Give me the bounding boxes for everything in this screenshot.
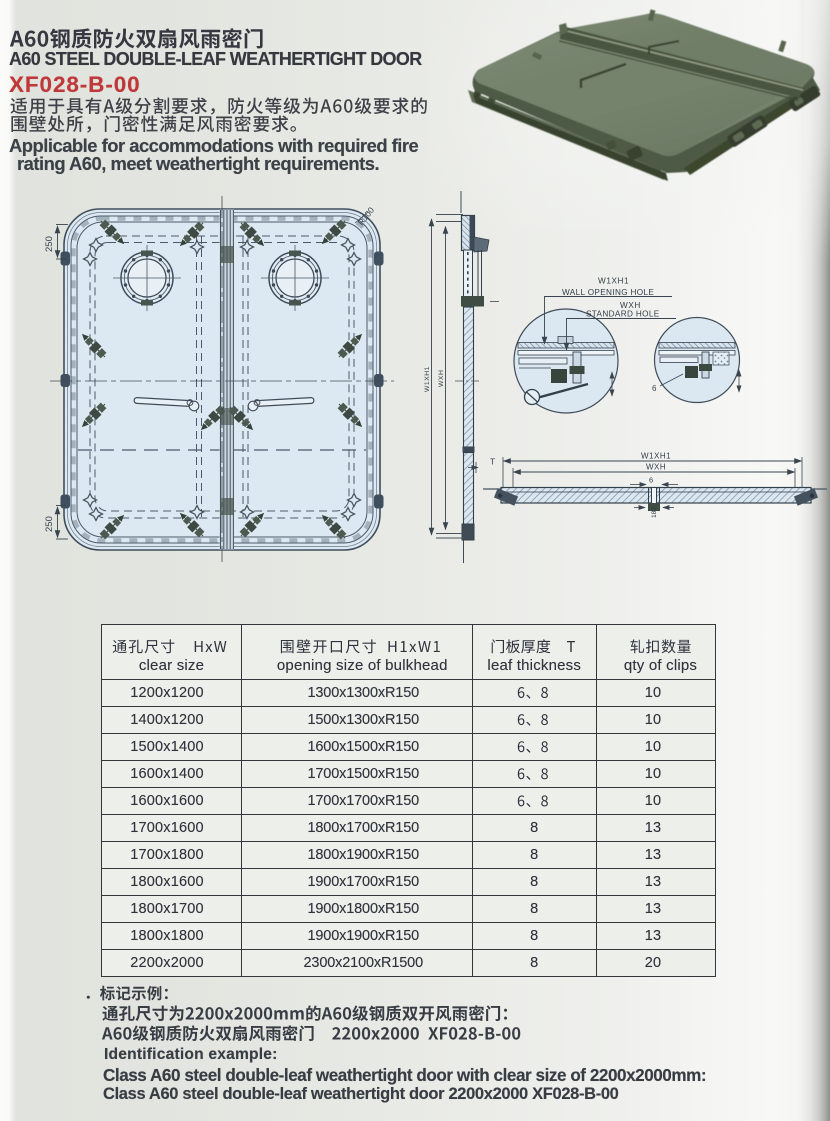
svg-text:W1XH1: W1XH1 [598,277,629,286]
svg-text:W1XH1: W1XH1 [641,452,671,461]
svg-text:WXH: WXH [438,370,445,387]
svg-text:T: T [490,457,495,467]
svg-text:WALL OPENING HOLE: WALL OPENING HOLE [562,288,654,297]
svg-text:250: 250 [44,236,55,252]
svg-text:STANDARD HOLE: STANDARD HOLE [586,310,660,319]
svg-text:WXH: WXH [646,463,666,472]
svg-text:6: 6 [649,476,653,485]
svg-text:W1XH1: W1XH1 [424,366,431,392]
svg-text:180: 180 [651,507,658,518]
svg-text:6: 6 [652,384,657,393]
svg-text:250: 250 [44,516,55,532]
